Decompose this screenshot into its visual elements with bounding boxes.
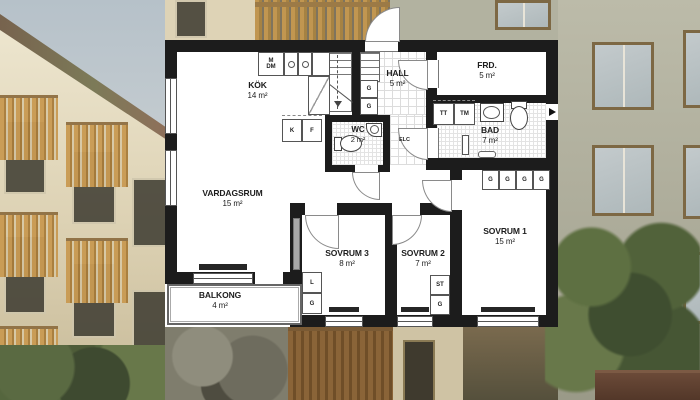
room-name: SOVRUM 2 (395, 248, 451, 259)
room-name: SOVRUM 3 (313, 248, 381, 259)
right-building-window (683, 145, 700, 219)
electrical-cabinet-label: ELC (399, 137, 410, 143)
sink-bowl-icon (302, 61, 309, 68)
bushes (458, 327, 558, 400)
window (165, 78, 177, 134)
kitchen-micro-dishwasher: M DM (258, 52, 284, 76)
left-building-window (132, 178, 168, 247)
sink-bowl-icon (288, 61, 295, 68)
left-building-balcony (66, 238, 128, 303)
room-area: 15 m² (470, 237, 540, 247)
radiator (481, 307, 535, 312)
closet-label: G (310, 301, 315, 307)
left-foreground-foliage (0, 345, 170, 400)
top-balcony-rail (255, 2, 390, 7)
wall (426, 95, 558, 103)
floor-drain-icon (478, 151, 496, 158)
room-label-bad: BAD 7 m² (460, 125, 520, 146)
rocks (165, 327, 290, 400)
freezer-label: F (310, 128, 314, 134)
room-label-frd: FRD. 5 m² (457, 60, 517, 81)
wc-wall (383, 115, 390, 172)
closet-wardrobe: G (482, 170, 499, 190)
dryer: TT (433, 103, 454, 125)
bedroom2-door-opening (392, 203, 420, 215)
room-label-balkong: BALKONG 4 m² (190, 290, 250, 311)
closet-label: ST (436, 282, 444, 288)
balcony-door-opening (255, 272, 283, 284)
closet-wardrobe: G (430, 295, 450, 315)
wooden-fence (288, 327, 393, 400)
room-label-sovrum2: SOVRUM 2 7 m² (395, 248, 451, 269)
bathroom-sink-bowl-icon (483, 106, 500, 119)
wc-door-arc (352, 172, 380, 200)
open-door-leaf (293, 218, 300, 270)
room-name: SOVRUM 1 (470, 226, 540, 237)
wc-wall (325, 115, 332, 172)
room-area: 5 m² (370, 79, 425, 89)
closet-wardrobe: G (302, 293, 322, 314)
left-building-balcony (0, 95, 58, 160)
room-label-kok: KÖK 14 m² (220, 80, 295, 101)
wc-door-opening (355, 165, 378, 172)
room-name: BAD (460, 125, 520, 136)
wall (165, 40, 558, 52)
kitchen-corner-counter (308, 76, 330, 115)
closet-label: G (522, 177, 527, 183)
right-building-window (683, 30, 700, 108)
room-name: WC (337, 125, 379, 135)
room-name: HALL (370, 68, 425, 79)
left-building-balcony (0, 212, 58, 277)
washer: TM (454, 103, 475, 125)
room-area: 7 m² (395, 259, 451, 269)
window (397, 316, 433, 327)
wall (352, 52, 360, 115)
fridge-label: K (290, 128, 294, 134)
stair-direction-arrow-icon (334, 101, 342, 107)
overhead-cabinet-dashes (282, 115, 322, 116)
small-roof-structure (595, 370, 700, 400)
bedroom2-door-arc (392, 215, 422, 245)
closet-linen: L (302, 272, 322, 293)
room-area: 8 m² (313, 259, 381, 269)
floor-plan: G G M DM K F TT TM ELC G G G (165, 40, 558, 327)
top-facade-window (495, 0, 551, 30)
radiator (329, 307, 359, 312)
closet-label: G (539, 177, 544, 183)
washer-label: TM (460, 111, 469, 117)
room-label-sovrum3: SOVRUM 3 8 m² (313, 248, 381, 269)
window (477, 316, 539, 327)
left-building-balcony (66, 122, 128, 187)
bedroom3-door-opening (305, 203, 337, 215)
room-area: 2 m² (337, 135, 379, 145)
closet-wardrobe: G (360, 98, 378, 115)
closet-label: L (310, 280, 314, 286)
top-facade-window (175, 0, 207, 38)
dishwasher-label: DM (266, 64, 275, 70)
closet-cleaning: ST (430, 275, 450, 295)
bedroom3-door-arc (305, 215, 339, 249)
room-name: BALKONG (190, 290, 250, 301)
room-area: 4 m² (190, 301, 250, 311)
entry-door (403, 340, 435, 400)
closet-wardrobe: G (533, 170, 550, 190)
freezer: F (302, 119, 322, 142)
section-arrow-icon (549, 108, 556, 116)
closet-label: G (505, 177, 510, 183)
room-area: 5 m² (457, 71, 517, 81)
window (193, 273, 253, 284)
fridge: K (282, 119, 302, 142)
closet-wardrobe: G (499, 170, 516, 190)
room-area: 7 m² (460, 136, 520, 146)
closet-label: G (488, 177, 493, 183)
wall (437, 158, 558, 170)
radiator (199, 264, 247, 270)
room-name: KÖK (220, 80, 295, 91)
right-building-window (592, 145, 654, 216)
room-area: 14 m² (220, 91, 295, 101)
window (325, 316, 363, 327)
radiator (401, 307, 429, 312)
room-label-vardagsrum: VARDAGSRUM 15 m² (180, 188, 285, 209)
kitchen-counter (312, 52, 330, 76)
kitchen-sink (284, 52, 298, 76)
overhead-dashes (433, 100, 475, 101)
right-building-window (592, 42, 654, 110)
closet-label: G (367, 104, 372, 110)
room-name: VARDAGSRUM (180, 188, 285, 199)
room-name: FRD. (457, 60, 517, 71)
window (165, 150, 177, 206)
room-label-hall: HALL 5 m² (370, 68, 425, 89)
room-label-wc: WC 2 m² (337, 125, 379, 145)
closet-label: G (438, 302, 443, 308)
wc-wall (325, 115, 390, 122)
closet-wardrobe: G (516, 170, 533, 190)
dryer-label: TT (440, 111, 447, 117)
room-area: 15 m² (180, 199, 285, 209)
screenshot-stage: G G M DM K F TT TM ELC G G G (0, 0, 700, 400)
room-label-sovrum1: SOVRUM 1 15 m² (470, 226, 540, 247)
kitchen-sink (298, 52, 312, 76)
